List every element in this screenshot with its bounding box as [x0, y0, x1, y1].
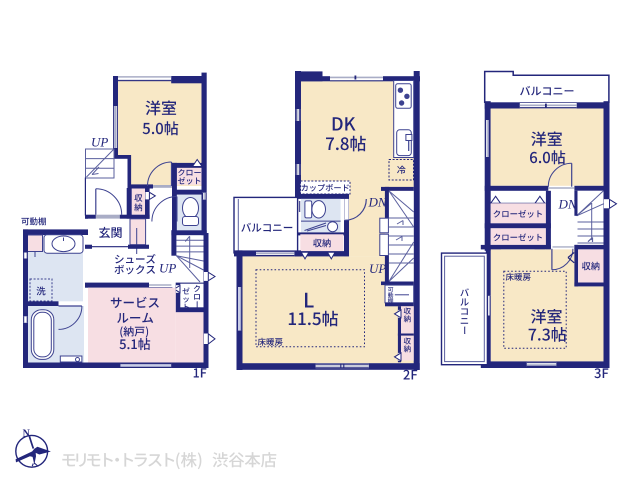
svg-text:UP: UP — [369, 261, 386, 276]
svg-text:DN: DN — [368, 195, 388, 210]
svg-text:UP: UP — [91, 135, 108, 150]
svg-text:UP: UP — [159, 261, 176, 276]
